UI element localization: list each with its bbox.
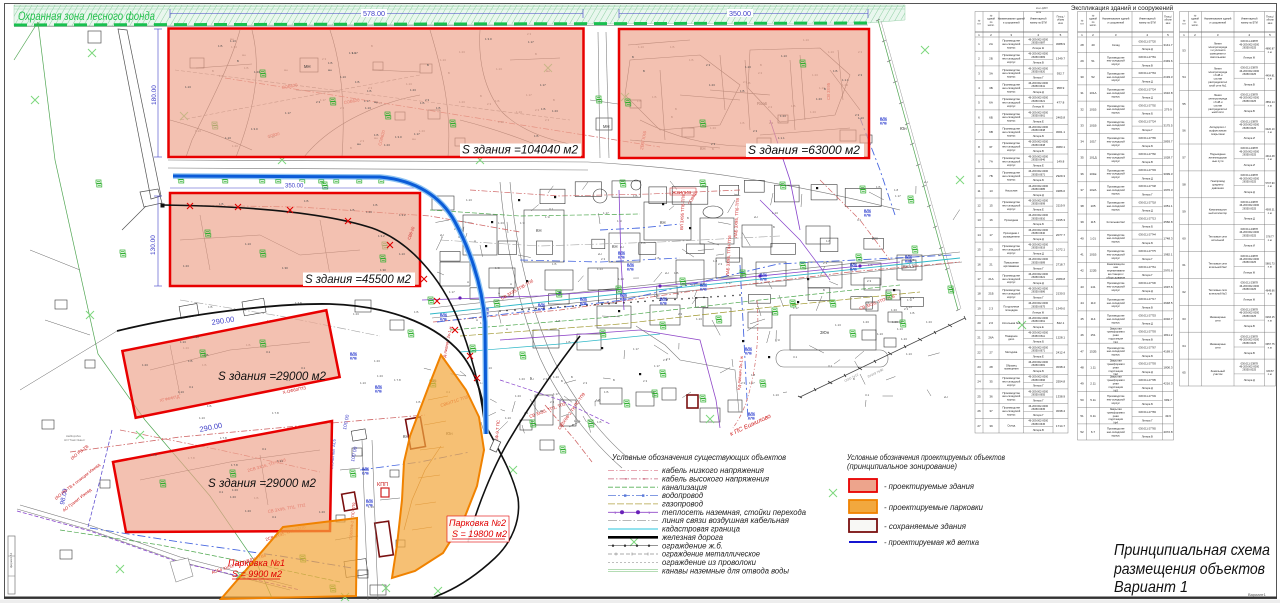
svg-text:КН: КН (660, 220, 665, 225)
svg-text:1 23: 1 23 (384, 143, 390, 147)
svg-text:Литера В: Литера В (1244, 324, 1255, 328)
svg-text:нно-складской: нно-складской (1002, 101, 1021, 105)
svg-text:(принципиальное зонирование): (принципиальное зонирование) (847, 461, 957, 471)
svg-text:26350:0025: 26350:0025 (1242, 153, 1256, 157)
svg-text:26350:0025: 26350:0025 (1242, 99, 1256, 103)
svg-text:1.8: 1.8 (826, 239, 831, 243)
svg-text:Литера Ж: Литера Ж (1032, 46, 1044, 50)
svg-text:нно-складской: нно-складской (1107, 285, 1126, 289)
svg-text:Производстве: Производстве (1107, 394, 1125, 398)
svg-text:149.8: 149.8 (1057, 159, 1065, 163)
svg-text:Производстве: Производстве (1107, 249, 1125, 253)
svg-text:корпус: корпус (1007, 149, 1016, 152)
svg-text:S здания =104040 м2: S здания =104040 м2 (462, 143, 578, 157)
svg-text:КЛ6: КЛ6 (350, 357, 357, 361)
svg-text:1.13: 1.13 (858, 116, 864, 120)
svg-text:ВЛ6: ВЛ6 (350, 352, 357, 356)
svg-text:3Б: 3Б (989, 86, 993, 90)
svg-text:нно-складской: нно-складской (1107, 91, 1126, 95)
svg-text:2.11: 2.11 (1090, 382, 1096, 386)
svg-text:ный коллектор: ный коллектор (1209, 211, 1228, 215)
svg-text:26350:0671: 26350:0671 (1031, 349, 1045, 353)
svg-text:Литера Б: Литера Б (1033, 178, 1044, 182)
svg-text:нно-складской: нно-складской (1107, 317, 1126, 321)
svg-text:НайКоробка: НайКоробка (66, 434, 81, 438)
svg-text:корпус: корпус (1007, 252, 1016, 255)
svg-text:1 1.1: 1 1.1 (778, 136, 785, 140)
svg-text:трансформато: трансформато (1107, 330, 1126, 334)
svg-text:А: А (510, 282, 512, 286)
svg-text:7А: 7А (989, 159, 993, 163)
svg-text:6В: 6В (989, 130, 993, 134)
svg-text:1 1.1: 1 1.1 (842, 78, 849, 82)
svg-text:п.м.: п.м. (1268, 212, 1273, 215)
svg-text:Б: Б (687, 216, 689, 220)
svg-text:1.13: 1.13 (466, 198, 472, 202)
svg-text:47: 47 (1080, 349, 1084, 353)
svg-text:3.1: 3.1 (691, 283, 696, 287)
svg-text:39: 39 (989, 424, 993, 428)
svg-text:1 17: 1 17 (603, 211, 609, 215)
svg-text:30: 30 (1080, 75, 1084, 79)
svg-text:нно-складской: нно-складской (1107, 430, 1126, 434)
svg-text:2193.3: 2193.3 (1163, 75, 1173, 79)
svg-text:2 3: 2 3 (823, 261, 828, 265)
svg-text:Литера Е: Литера Е (1033, 208, 1044, 212)
svg-text:2119.9: 2119.9 (1056, 203, 1065, 207)
svg-text:1 Б: 1 Б (219, 202, 224, 206)
svg-text:26А: 26А (988, 336, 993, 340)
svg-text:26350:0621: 26350:0621 (1031, 99, 1045, 103)
svg-text:122Б: 122Б (1090, 269, 1097, 273)
svg-text:1.13: 1.13 (696, 317, 702, 321)
svg-text:1 Б: 1 Б (355, 80, 360, 84)
svg-text:1.01: 1.01 (1090, 236, 1096, 240)
svg-text:Производстве: Производстве (1107, 201, 1125, 205)
svg-text:помещения: помещения (1004, 368, 1019, 371)
svg-text:ные пути: ные пути (1212, 160, 1224, 163)
svg-text:Литера Г: Литера Г (1033, 266, 1044, 270)
svg-text:Литера Д: Литера Д (1142, 289, 1153, 293)
svg-text:Литера Д: Литера Д (1142, 370, 1153, 374)
svg-text:корпус: корпус (1007, 105, 1016, 108)
svg-text:2893.7: 2893.7 (1163, 140, 1173, 144)
svg-text:1.13: 1.13 (618, 277, 624, 281)
svg-text:нно-складской: нно-складской (1002, 292, 1021, 296)
svg-text:и сооружений: и сооружений (1003, 21, 1020, 25)
svg-text:Котельная №3: Котельная №3 (1002, 321, 1021, 325)
svg-text:1 23: 1 23 (515, 394, 521, 398)
svg-text:нно-складской: нно-складской (1107, 236, 1126, 240)
svg-text:Производстве: Производстве (1002, 39, 1020, 43)
svg-text:4169.3: 4169.3 (1163, 349, 1173, 353)
svg-text:2 3: 2 3 (753, 129, 758, 133)
svg-text:1 23: 1 23 (926, 320, 932, 324)
svg-text:1072.1: 1072.1 (1056, 248, 1066, 252)
svg-text:24: 24 (977, 380, 981, 384)
svg-text:Б: Б (853, 377, 855, 381)
svg-text:Литера Б: Литера Б (1142, 402, 1153, 406)
svg-text:17: 17 (977, 277, 981, 281)
svg-text:Литера Д: Литера Д (1244, 217, 1255, 221)
svg-text:1 Б: 1 Б (328, 61, 333, 65)
svg-text:корпус: корпус (1007, 208, 1016, 211)
svg-text:030:011-27713: 030:011-27713 (1139, 217, 1157, 221)
svg-text:2077.7: 2077.7 (1056, 233, 1066, 237)
svg-text:1.8: 1.8 (654, 294, 659, 298)
svg-text:Б: Б (561, 379, 563, 383)
svg-text:Литера Г: Литера Г (1033, 384, 1044, 388)
svg-text:1 Б: 1 Б (865, 301, 870, 305)
svg-text:1.13: 1.13 (773, 393, 779, 397)
svg-text:1349.0: 1349.0 (1056, 306, 1066, 310)
svg-text:1228.1: 1228.1 (1056, 336, 1066, 340)
svg-text:28: 28 (1080, 43, 1084, 47)
svg-text:1.13: 1.13 (365, 106, 371, 110)
svg-text:3.1: 3.1 (189, 385, 194, 389)
svg-text:1 Б: 1 Б (556, 319, 561, 323)
svg-text:56: 56 (1182, 129, 1186, 133)
svg-text:Производстве: Производстве (1107, 136, 1125, 140)
svg-text:21: 21 (977, 336, 981, 340)
svg-text:Склад: Склад (1007, 424, 1015, 428)
svg-text:Вариант 1: Вариант 1 (1114, 579, 1188, 596)
svg-text:35: 35 (1080, 156, 1084, 160)
svg-text:1 Б: 1 Б (304, 199, 309, 203)
svg-text:38: 38 (1080, 204, 1084, 208)
svg-text:Б: Б (427, 63, 429, 67)
svg-text:1 23: 1 23 (892, 320, 898, 324)
svg-text:4032.7: 4032.7 (1163, 317, 1173, 321)
svg-text:Производстве: Производстве (1002, 83, 1020, 87)
svg-text:1051.1: 1051.1 (1163, 204, 1173, 208)
svg-text:корпус: корпус (1112, 144, 1121, 147)
svg-text:нно-складской: нно-складской (1107, 252, 1126, 256)
svg-text:1 17: 1 17 (449, 290, 455, 294)
svg-text:Литера В: Литера В (1244, 82, 1255, 86)
svg-text:1.13: 1.13 (692, 296, 698, 300)
svg-text:1.13: 1.13 (340, 75, 346, 79)
svg-text:23: 23 (977, 365, 981, 369)
svg-text:Литера В: Литера В (1142, 160, 1153, 164)
svg-text:Производстве: Производстве (1002, 112, 1020, 116)
svg-text:размещения объектов: размещения объектов (1113, 561, 1265, 578)
svg-text:2 3: 2 3 (678, 312, 683, 316)
svg-text:1.13: 1.13 (781, 54, 787, 58)
svg-text:2.6: 2.6 (989, 321, 994, 325)
svg-text:1 Б: 1 Б (436, 106, 441, 110)
svg-text:1 3.2: 1 3.2 (378, 234, 385, 238)
svg-text:3001.1: 3001.1 (1056, 130, 1066, 134)
svg-text:1.13: 1.13 (277, 459, 283, 463)
svg-text:корпус: корпус (1112, 321, 1121, 324)
svg-text:давления: давления (1212, 187, 1224, 190)
svg-text:Литера Д: Литера Д (1142, 176, 1153, 180)
svg-text:1 Б: 1 Б (833, 69, 838, 73)
svg-text:26350:0025: 26350:0025 (1242, 287, 1256, 291)
svg-text:нно-складской: нно-складской (1107, 123, 1126, 127)
svg-text:26350:0025: 26350:0025 (1242, 206, 1256, 210)
svg-text:2465.8: 2465.8 (1056, 115, 1066, 119)
svg-text:артскважине: артскважине (1003, 265, 1019, 268)
svg-text:102А: 102А (1089, 188, 1096, 192)
svg-text:ЗЮн: ЗЮн (820, 330, 830, 335)
svg-text:030:011-27724: 030:011-27724 (1139, 87, 1157, 91)
svg-text:ВЛ6: ВЛ6 (580, 297, 587, 301)
svg-text:Производстве: Производстве (1107, 104, 1125, 108)
svg-text:1 Б: 1 Б (367, 89, 372, 93)
svg-text:п.м.: п.м. (1268, 293, 1273, 296)
svg-text:26350:0025: 26350:0025 (1242, 233, 1256, 237)
svg-text:2089.8: 2089.8 (1056, 277, 1066, 281)
svg-text:958.9: 958.9 (1057, 86, 1065, 90)
svg-text:номер по БТИ: номер по БТИ (1139, 21, 1156, 25)
svg-text:1 Б: 1 Б (910, 311, 915, 315)
svg-text:1 23: 1 23 (709, 83, 715, 87)
svg-text:п.м.: п.м. (1268, 185, 1273, 188)
svg-text:1 Б: 1 Б (416, 400, 421, 404)
svg-text:1 Б: 1 Б (604, 390, 609, 394)
svg-text:А: А (467, 280, 469, 284)
svg-text:130.00: 130.00 (150, 235, 157, 255)
svg-text:Склад: Склад (1112, 43, 1120, 47)
svg-text:030:011-27730: 030:011-27730 (1139, 281, 1157, 285)
svg-text:ВЛ6: ВЛ6 (850, 263, 857, 267)
svg-text:2 3: 2 3 (741, 381, 746, 385)
svg-text:КН: КН (536, 228, 541, 233)
svg-text:14: 14 (977, 233, 981, 237)
svg-text:нно-складской: нно-складской (1002, 394, 1021, 398)
svg-text:26350:0611: 26350:0611 (1031, 334, 1045, 338)
svg-text:Производстве: Производстве (1107, 120, 1125, 124)
svg-text:1 Б: 1 Б (414, 310, 419, 314)
svg-text:Закрытая: Закрытая (1110, 407, 1122, 411)
svg-text:1.13: 1.13 (897, 327, 903, 331)
svg-text:нно-складской: нно-складской (1002, 277, 1021, 281)
svg-text:1 3.0: 1 3.0 (485, 37, 492, 41)
svg-text:Б: Б (773, 225, 775, 229)
svg-text:1 30: 1 30 (380, 268, 386, 272)
svg-text:1 23: 1 23 (353, 312, 359, 316)
svg-text:номер по БТИ: номер по БТИ (1030, 21, 1047, 25)
svg-text:26350:0686: 26350:0686 (1031, 290, 1045, 294)
svg-text:S здания =45500 м2: S здания =45500 м2 (305, 274, 412, 286)
svg-text:Газопровод: Газопровод (1211, 179, 1226, 183)
svg-text:4560.8: 4560.8 (1163, 220, 1173, 224)
svg-text:№4: №4 (1114, 421, 1119, 425)
svg-text:3.1: 3.1 (828, 364, 833, 368)
svg-text:Производстве: Производстве (1002, 156, 1020, 160)
svg-text:18: 18 (977, 292, 981, 296)
svg-text:п.м.: п.м. (1268, 77, 1273, 80)
svg-text:п.м.: п.м. (1268, 239, 1273, 242)
svg-text:Б: Б (613, 378, 615, 382)
svg-text:котельной №2: котельной №2 (1209, 265, 1227, 269)
svg-text:корпус: корпус (1007, 90, 1016, 93)
svg-text:26350:0638: 26350:0638 (1031, 128, 1045, 132)
svg-text:ВЛ6: ВЛ6 (760, 273, 767, 277)
svg-text:Литера Г: Литера Г (1033, 413, 1044, 417)
svg-text:030:011-27760: 030:011-27760 (1139, 152, 1157, 156)
svg-text:6Г: 6Г (989, 145, 993, 149)
svg-text:Производстве: Производстве (1002, 141, 1020, 145)
svg-text:26350:0621: 26350:0621 (1031, 275, 1045, 279)
svg-text:Литера Е: Литера Е (1033, 325, 1044, 329)
svg-text:1.13: 1.13 (185, 85, 191, 89)
svg-text:1 17: 1 17 (654, 364, 660, 368)
svg-text:2 3: 2 3 (858, 73, 863, 77)
svg-text:и сооружений: и сооружений (1209, 21, 1226, 25)
svg-text:кН: кН (440, 233, 443, 237)
svg-text:Литера Д: Литера Д (1142, 209, 1153, 213)
svg-text:кв.м: кв.м (1166, 22, 1171, 25)
svg-text:1 17: 1 17 (553, 392, 559, 396)
svg-text:Литера Д: Литера Д (1244, 378, 1255, 382)
svg-text:1 Б: 1 Б (674, 271, 679, 275)
svg-text:2970.6: 2970.6 (1163, 269, 1173, 273)
svg-text:нно-складской: нно-складской (1107, 301, 1126, 305)
svg-text:нно-складской: нно-складской (1107, 349, 1126, 353)
svg-text:Литера Б: Литера Б (1142, 225, 1153, 229)
svg-text:1 Б: 1 Б (633, 194, 638, 198)
svg-text:мгм: мгм (1036, 10, 1041, 14)
svg-text:КЛ6: КЛ6 (538, 308, 545, 312)
svg-text:030:011-27753: 030:011-27753 (1139, 313, 1157, 317)
svg-text:26350:0661: 26350:0661 (1031, 319, 1045, 323)
svg-text:КЛ6: КЛ6 (620, 298, 627, 302)
svg-text:141: 141 (1090, 285, 1095, 289)
svg-text:КН: КН (903, 264, 908, 269)
svg-text:п.м.: п.м. (1268, 266, 1273, 269)
svg-text:ВЛ6: ВЛ6 (627, 263, 634, 267)
svg-text:1 Б: 1 Б (655, 256, 660, 260)
svg-text:3083.1: 3083.1 (1056, 145, 1066, 149)
svg-text:Производстве: Производстве (1002, 406, 1020, 410)
svg-text:26350:0025: 26350:0025 (1242, 341, 1256, 345)
svg-text:21А: 21А (988, 277, 993, 281)
svg-text:2 3: 2 3 (666, 357, 671, 361)
svg-text:030:011-27748: 030:011-27748 (1139, 184, 1157, 188)
svg-text:Литера Ж: Литера Ж (1243, 297, 1255, 301)
svg-text:12: 12 (977, 203, 981, 207)
svg-text:1 23: 1 23 (377, 374, 383, 378)
svg-text:Условные обозначения существую: Условные обозначения существующих объект… (611, 452, 786, 462)
svg-text:63: 63 (1182, 317, 1186, 321)
svg-text:КЛ6: КЛ6 (700, 288, 707, 292)
svg-text:030:011-27763: 030:011-27763 (1139, 71, 1157, 75)
svg-text:Проходная: Проходная (1004, 218, 1018, 222)
svg-text:Литера Д: Литера Д (1033, 193, 1044, 197)
svg-text:1 Б: 1 Б (595, 399, 600, 403)
svg-text:41: 41 (1080, 253, 1084, 257)
svg-text:43: 43 (1080, 285, 1084, 289)
svg-text:Литера Б: Литера Б (1142, 354, 1153, 358)
svg-text:нно-складской: нно-складской (1107, 188, 1126, 192)
svg-text:Производстве: Производстве (1002, 244, 1020, 248)
svg-text:КПП: КПП (377, 482, 388, 488)
svg-text:Производстве: Производстве (1002, 171, 1020, 175)
svg-text:Инвентарный: Инвентарный (1241, 17, 1258, 21)
svg-text:030:011-27765: 030:011-27765 (1139, 426, 1157, 430)
svg-text:нно-складской: нно-складской (1107, 172, 1126, 176)
svg-text:279.9: 279.9 (1164, 107, 1172, 111)
svg-text:Тепловые сети: Тепловые сети (1208, 261, 1227, 265)
svg-text:1 Б: 1 Б (876, 185, 881, 189)
svg-text:26350:0687: 26350:0687 (1031, 41, 1045, 45)
svg-text:Литера В: Литера В (1142, 63, 1153, 67)
svg-text:2 3: 2 3 (550, 400, 555, 404)
svg-text:4216.3: 4216.3 (1163, 382, 1173, 386)
svg-text:52: 52 (1080, 430, 1084, 434)
svg-text:Автодороги с: Автодороги с (1210, 125, 1227, 129)
svg-text:60: 60 (1182, 236, 1186, 240)
svg-text:Охранная зона лесного фонда: Охранная зона лесного фонда (18, 11, 155, 23)
svg-text:49.6: 49.6 (1165, 414, 1171, 418)
svg-text:26350:0646: 26350:0646 (1031, 158, 1045, 162)
svg-text:корпус: корпус (1007, 61, 1016, 64)
svg-text:экспл.: экспл. (1192, 24, 1199, 27)
svg-text:2929.3: 2929.3 (1056, 174, 1066, 178)
svg-text:1 7.8: 1 7.8 (231, 463, 238, 467)
svg-text:КЛ6: КЛ6 (375, 390, 382, 394)
svg-text:2 3: 2 3 (711, 142, 716, 146)
svg-text:42: 42 (1080, 269, 1084, 273)
svg-text:2 3: 2 3 (718, 262, 723, 266)
svg-text:Литера Д: Литера Д (1142, 322, 1153, 326)
svg-text:Наименование зданий: Наименование зданий (1204, 17, 1232, 21)
svg-text:4648.5: 4648.5 (1163, 301, 1173, 305)
svg-text:030:011-27783: 030:011-27783 (1139, 410, 1157, 414)
svg-text:асфальтовым: асфальтовым (1209, 129, 1226, 133)
svg-text:2412.4: 2412.4 (1056, 350, 1066, 354)
svg-text:Производстве: Производстве (1002, 376, 1020, 380)
svg-text:26350:0689: 26350:0689 (1031, 260, 1045, 264)
svg-text:Б: Б (632, 55, 634, 59)
svg-text:Производстве: Производстве (1107, 55, 1125, 59)
svg-text:ВЛ6: ВЛ6 (620, 293, 627, 297)
svg-text:Литера В: Литера В (1142, 435, 1153, 439)
svg-text:Литера В: Литера В (1142, 338, 1153, 342)
svg-text:3.1: 3.1 (857, 218, 862, 222)
svg-text:S = 19800 м2: S = 19800 м2 (452, 529, 507, 539)
svg-text:115: 115 (1091, 220, 1096, 224)
svg-text:п.м.: п.м. (1268, 131, 1273, 134)
svg-text:Юн: Юн (900, 126, 907, 131)
svg-text:3195.3: 3195.3 (1056, 218, 1066, 222)
svg-text:26350:0681: 26350:0681 (1031, 363, 1045, 367)
svg-text:нно-складской: нно-складской (1002, 145, 1021, 149)
svg-text:1 7.8: 1 7.8 (272, 411, 279, 415)
svg-text:Литера Д: Литера Д (1033, 237, 1044, 241)
svg-text:сети: сети (1215, 319, 1221, 322)
svg-text:Литера Г: Литера Г (1033, 398, 1044, 402)
svg-text:1 3.0: 1 3.0 (395, 135, 402, 139)
svg-text:нно-складской: нно-складской (1107, 139, 1126, 143)
svg-text:Б: Б (530, 376, 532, 380)
svg-text:корпус: корпус (1007, 76, 1016, 79)
svg-text:Наименование зданий: Наименование зданий (1102, 17, 1130, 21)
svg-text:39: 39 (1080, 220, 1084, 224)
svg-text:1 23: 1 23 (410, 88, 416, 92)
svg-text:030:011-27781: 030:011-27781 (1139, 55, 1157, 59)
svg-text:578.00: 578.00 (363, 9, 385, 18)
svg-text:нно-складской: нно-складской (1002, 130, 1021, 134)
svg-text:Литера В: Литера В (1033, 149, 1044, 153)
svg-text:1 Б: 1 Б (373, 203, 378, 207)
svg-text:932.7: 932.7 (1057, 71, 1065, 75)
svg-text:Инженерные: Инженерные (1210, 342, 1227, 346)
svg-text:030:011-27792: 030:011-27792 (1139, 104, 1157, 108)
